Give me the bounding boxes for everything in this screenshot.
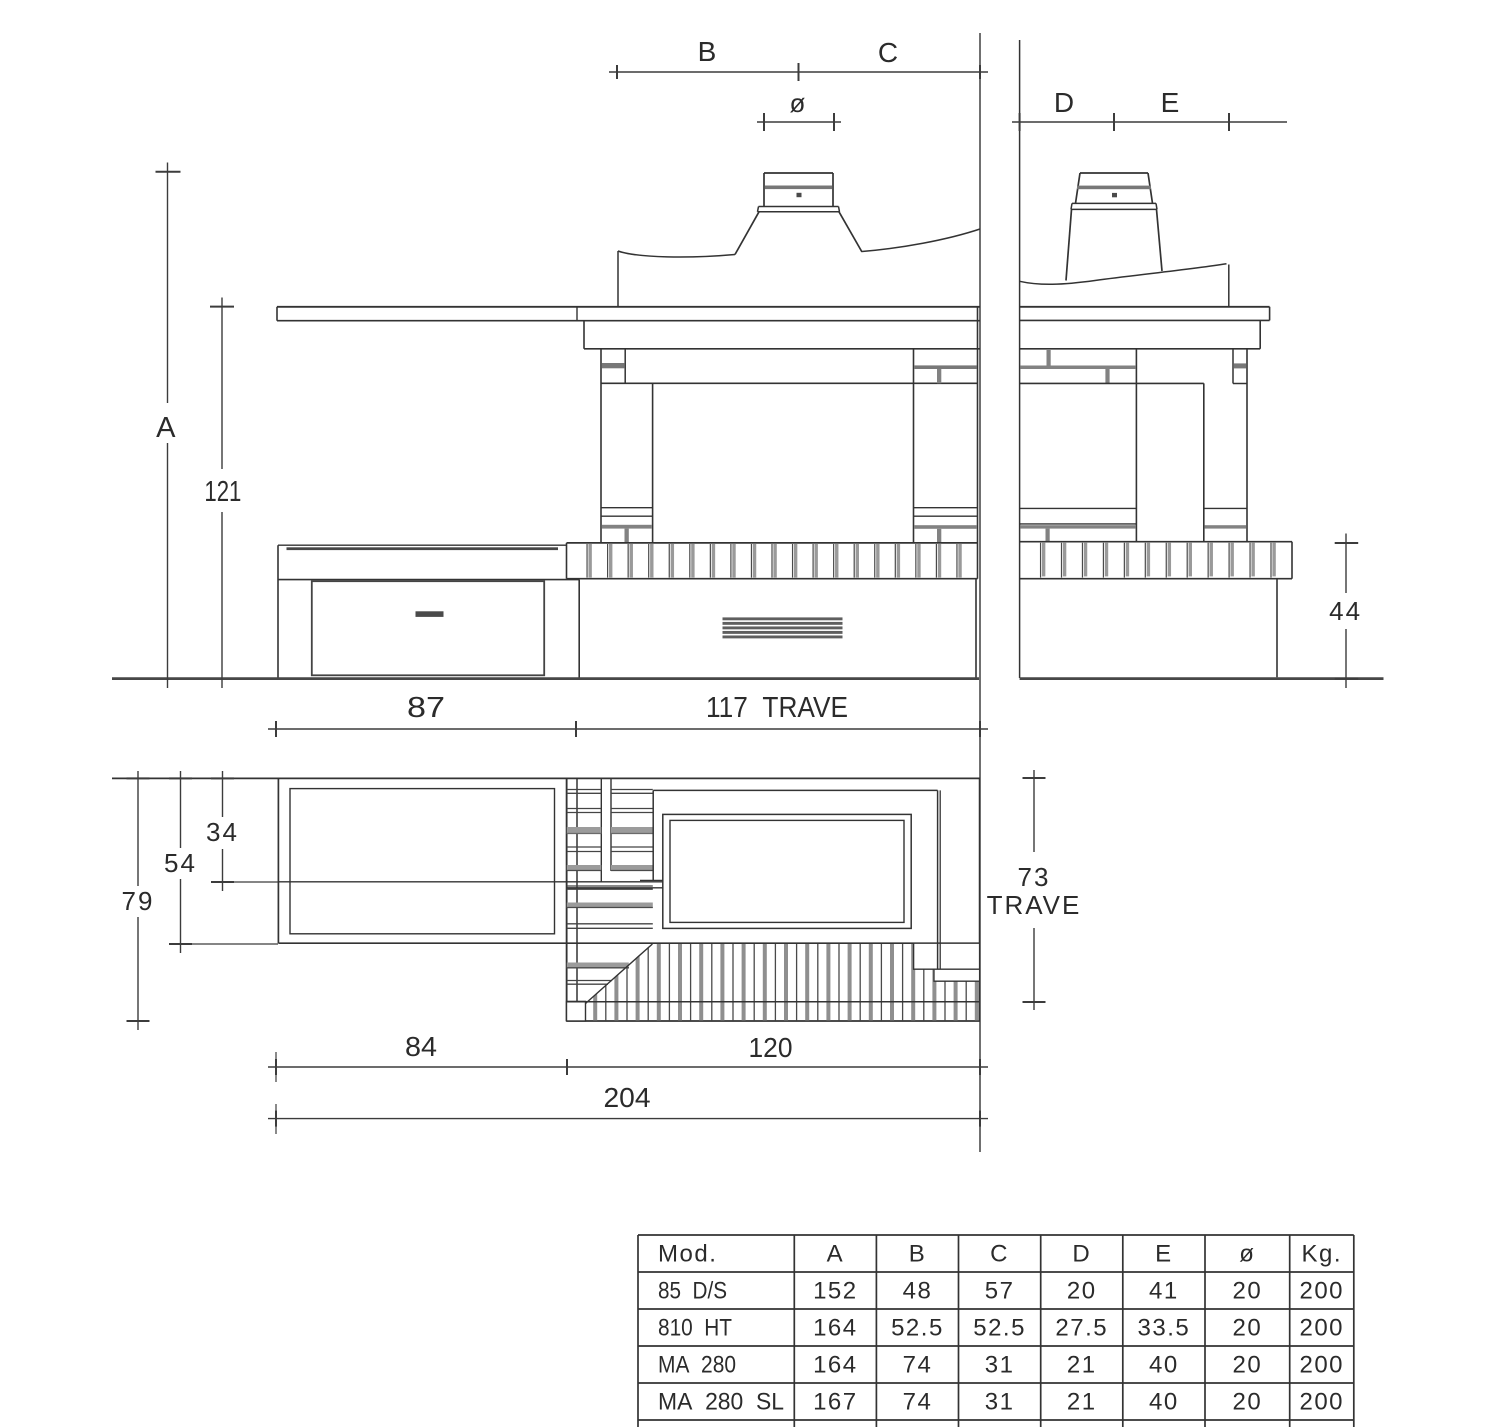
svg-text:C: C [990, 1241, 1009, 1268]
svg-text:152: 152 [813, 1278, 858, 1305]
svg-text:MA 280 SL: MA 280 SL [658, 1389, 784, 1416]
svg-text:120: 120 [749, 1032, 793, 1063]
svg-text:D: D [1054, 87, 1076, 118]
svg-text:20: 20 [1067, 1278, 1097, 1305]
svg-text:74: 74 [903, 1352, 933, 1379]
svg-text:ø: ø [790, 88, 808, 118]
svg-text:74: 74 [903, 1389, 933, 1416]
svg-text:52.5: 52.5 [891, 1315, 944, 1342]
svg-text:48: 48 [903, 1278, 933, 1305]
svg-text:810 HT: 810 HT [658, 1315, 732, 1342]
svg-text:79: 79 [122, 886, 155, 916]
svg-text:B: B [698, 36, 719, 67]
svg-text:200: 200 [1299, 1315, 1344, 1342]
svg-text:52.5: 52.5 [973, 1315, 1026, 1342]
svg-text:204: 204 [604, 1082, 651, 1113]
svg-text:20: 20 [1232, 1278, 1262, 1305]
svg-text:164: 164 [813, 1352, 858, 1379]
svg-text:TRAVE: TRAVE [987, 890, 1082, 920]
svg-text:20: 20 [1232, 1352, 1262, 1379]
svg-text:200: 200 [1299, 1389, 1344, 1416]
svg-text:33.5: 33.5 [1138, 1315, 1191, 1342]
svg-text:B: B [909, 1241, 927, 1268]
svg-text:117 TRAVE: 117 TRAVE [706, 692, 848, 724]
svg-text:21: 21 [1067, 1352, 1097, 1379]
svg-text:34: 34 [206, 817, 239, 847]
svg-text:84: 84 [405, 1031, 437, 1062]
svg-text:31: 31 [985, 1389, 1015, 1416]
svg-text:200: 200 [1299, 1278, 1344, 1305]
svg-text:21: 21 [1067, 1389, 1097, 1416]
svg-text:44: 44 [1329, 596, 1362, 626]
svg-text:E: E [1161, 87, 1182, 118]
svg-text:E: E [1155, 1241, 1173, 1268]
svg-text:87: 87 [407, 692, 445, 724]
svg-text:73: 73 [1018, 862, 1051, 892]
svg-text:121: 121 [204, 476, 241, 508]
svg-text:85 D/S: 85 D/S [658, 1278, 727, 1305]
svg-text:Kg.: Kg. [1301, 1241, 1342, 1268]
svg-text:A: A [827, 1241, 845, 1268]
svg-text:ø: ø [1239, 1241, 1255, 1268]
svg-text:20: 20 [1232, 1315, 1262, 1342]
svg-text:54: 54 [164, 848, 197, 878]
svg-text:MA 280: MA 280 [658, 1352, 736, 1379]
svg-text:D: D [1072, 1241, 1091, 1268]
svg-text:41: 41 [1149, 1278, 1179, 1305]
svg-text:200: 200 [1299, 1352, 1344, 1379]
svg-text:164: 164 [813, 1315, 858, 1342]
svg-text:40: 40 [1149, 1389, 1179, 1416]
svg-text:C: C [878, 37, 900, 68]
svg-text:Mod.: Mod. [658, 1241, 717, 1268]
svg-text:31: 31 [985, 1352, 1015, 1379]
svg-text:167: 167 [813, 1389, 858, 1416]
svg-text:40: 40 [1149, 1352, 1179, 1379]
svg-text:57: 57 [985, 1278, 1015, 1305]
svg-text:20: 20 [1232, 1389, 1262, 1416]
svg-text:A: A [156, 412, 177, 444]
svg-text:27.5: 27.5 [1055, 1315, 1108, 1342]
